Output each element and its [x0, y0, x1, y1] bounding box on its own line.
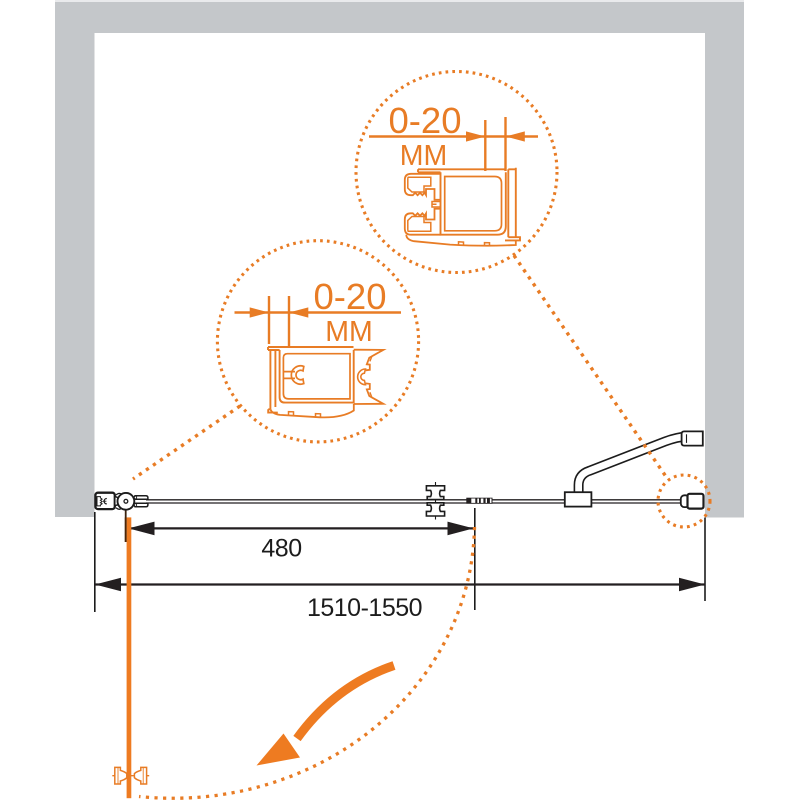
svg-text:ММ: ММ — [325, 316, 372, 348]
svg-text:1510-1550: 1510-1550 — [307, 594, 422, 622]
svg-text:480: 480 — [261, 534, 301, 562]
svg-text:ММ: ММ — [400, 140, 447, 172]
svg-text:0-20: 0-20 — [388, 100, 461, 141]
svg-text:0-20: 0-20 — [313, 276, 386, 317]
